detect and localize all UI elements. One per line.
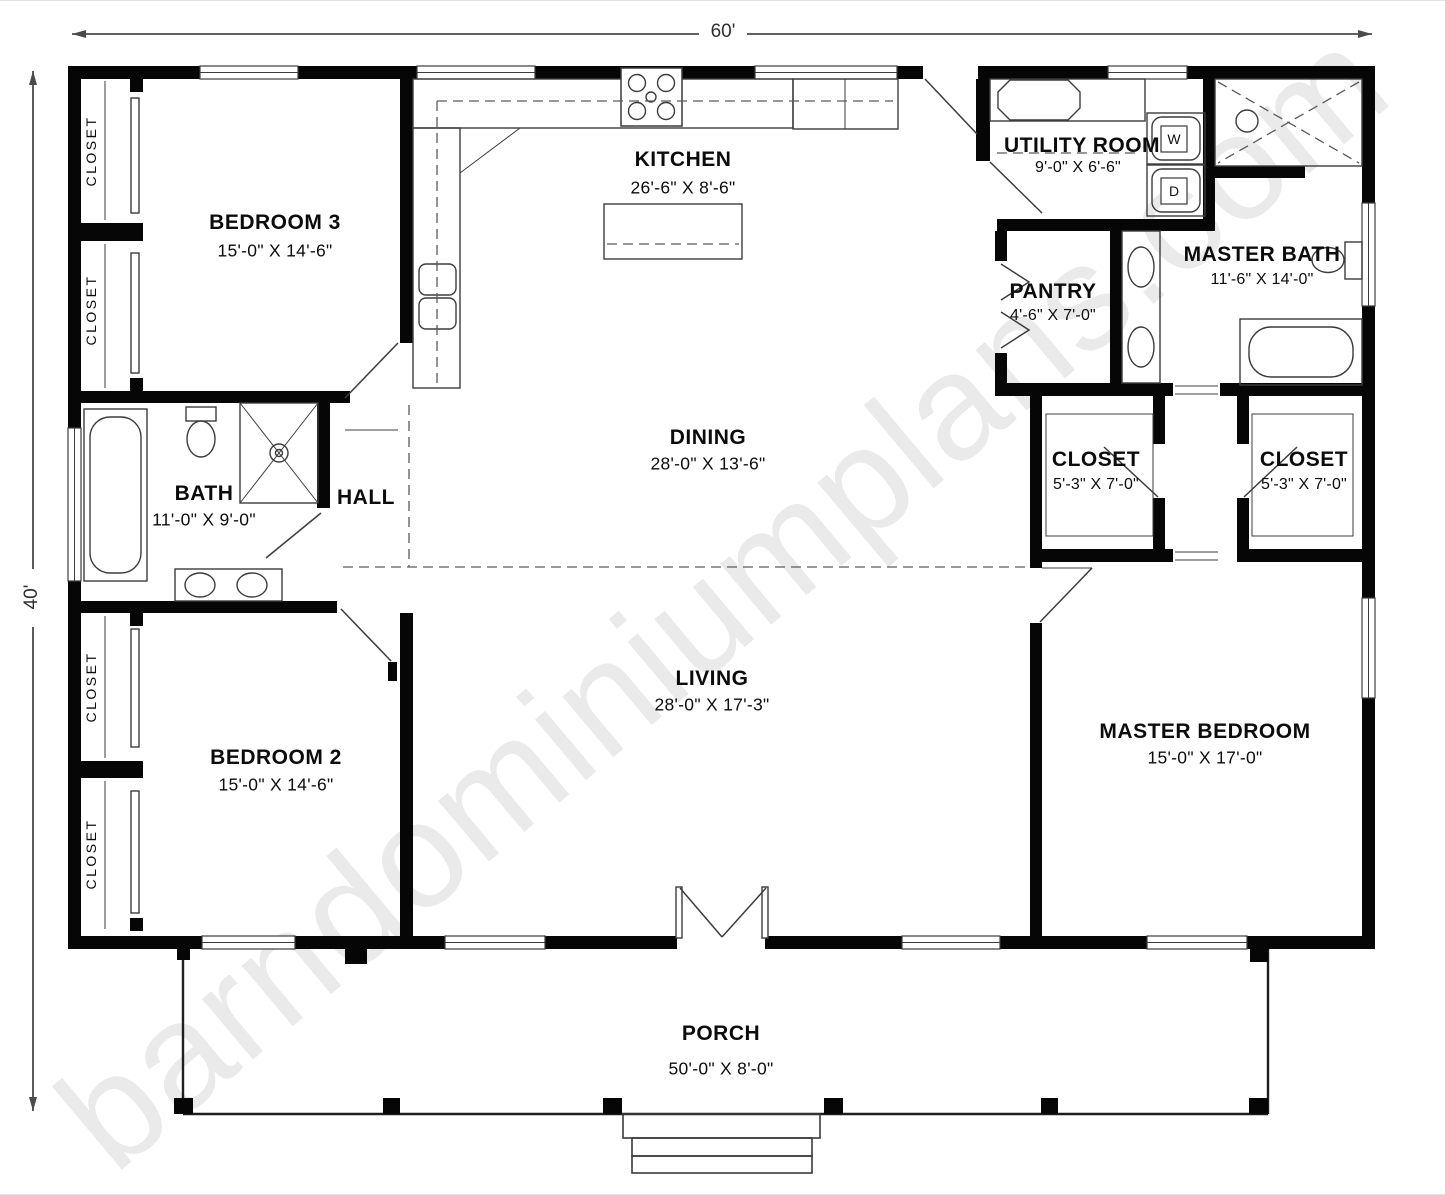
arrowhead-icon	[29, 1097, 37, 1111]
wall-segment	[68, 391, 350, 403]
window	[1362, 203, 1375, 306]
porch-post	[177, 949, 190, 960]
wall-segment	[997, 219, 1215, 231]
washer-label: W	[1167, 131, 1180, 147]
room-label-closet2: CLOSET	[1260, 448, 1348, 472]
bedroom3-door-leaf	[345, 343, 398, 398]
bath-door-leaf	[266, 513, 321, 558]
window	[445, 936, 545, 949]
closet-sliding-door	[131, 791, 139, 913]
walk-in-shower	[1215, 79, 1362, 166]
room-size-master-bedroom: 15'-0" X 17'-0"	[1147, 748, 1262, 769]
porch-step	[632, 1138, 812, 1156]
front-door-leaf	[722, 888, 766, 937]
room-label-kitchen: KITCHEN	[635, 148, 732, 172]
kitchen-island	[604, 204, 742, 259]
window	[68, 428, 81, 581]
dimension-label-width: 60'	[705, 21, 742, 43]
wall-segment	[68, 601, 337, 613]
closet-sliding-door	[131, 629, 139, 747]
window	[902, 936, 1000, 949]
door-jamb	[130, 378, 143, 391]
room-label-utility: UTILITY ROOM	[1004, 134, 1160, 158]
closet-shelf-outline	[1046, 414, 1153, 536]
room-label-living: LIVING	[675, 667, 748, 691]
window	[1147, 936, 1247, 949]
room-label-bedroom3: BEDROOM 3	[209, 211, 341, 235]
room-size-porch: 50'-0" X 8'-0"	[668, 1059, 773, 1080]
door-jamb	[388, 662, 397, 681]
room-size-bath: 11'-0" X 9'-0"	[152, 510, 256, 531]
porch-step	[623, 1114, 820, 1138]
window	[1108, 66, 1187, 79]
door-jamb	[130, 613, 143, 626]
porch-step	[632, 1156, 812, 1173]
rear-door-leaf	[925, 79, 977, 134]
closet-label-vertical: CLOSET	[83, 651, 99, 722]
wall-segment	[1215, 166, 1305, 178]
closet-label-vertical: CLOSET	[83, 274, 99, 345]
kitchen-fixtures	[413, 68, 898, 388]
room-label-dining: DINING	[670, 426, 747, 450]
arrowhead-icon	[72, 30, 86, 38]
wall-segment	[995, 383, 1173, 396]
master-bath-fixtures	[1122, 79, 1362, 385]
room-label-master-bath: MASTER BATH	[1184, 243, 1341, 267]
room-size-pantry: 4'-6" X 7'-0"	[1010, 307, 1096, 325]
refrigerator	[793, 79, 898, 129]
room-label-hall: HALL	[337, 486, 395, 510]
bedroom2-door-leaf	[341, 609, 391, 661]
double-vanity	[1122, 231, 1160, 383]
window	[755, 66, 897, 79]
room-size-bedroom3: 15'-0" X 14'-6"	[217, 241, 332, 262]
wall-segment	[400, 613, 413, 949]
porch-post	[345, 949, 367, 964]
closet-divider-wall	[68, 223, 143, 241]
wall-segment	[400, 66, 413, 343]
wall-segment	[1153, 498, 1165, 549]
front-door-panel	[762, 887, 768, 938]
double-vanity	[175, 569, 282, 601]
bathtub	[84, 409, 147, 581]
room-size-kitchen: 26'-6" X 8'-6"	[630, 178, 735, 199]
wall-segment	[1153, 396, 1165, 444]
wall-segment	[976, 66, 990, 161]
wall-segment	[317, 403, 330, 508]
arrowhead-icon	[1358, 30, 1372, 38]
wall-segment	[1030, 396, 1042, 568]
closet-sliding-door	[131, 253, 139, 373]
wall-segment	[995, 231, 1007, 261]
wall-segment	[995, 353, 1007, 383]
room-size-bedroom2: 15'-0" X 14'-6"	[218, 775, 333, 796]
dimension-label-height: 40'	[21, 579, 43, 616]
window	[202, 936, 295, 949]
front-door-panel	[676, 887, 682, 938]
room-label-bedroom2: BEDROOM 2	[210, 746, 342, 770]
room-size-closet1: 5'-3" X 7'-0"	[1053, 476, 1139, 494]
closet-label-vertical: CLOSET	[83, 818, 99, 889]
porch-post	[1041, 1098, 1058, 1114]
kitchen-counter	[413, 79, 793, 128]
porch-post	[824, 1098, 843, 1114]
wall-right	[1362, 66, 1375, 949]
stove	[621, 68, 682, 126]
closet-sliding-door	[131, 98, 139, 213]
rear-door-opening	[923, 66, 978, 79]
wall-segment	[1030, 623, 1042, 949]
bathtub	[1240, 319, 1362, 385]
closet-label-vertical: CLOSET	[83, 115, 99, 186]
room-size-closet2: 5'-3" X 7'-0"	[1261, 476, 1347, 494]
room-size-master-bath: 11'-6" X 14'-0"	[1211, 271, 1314, 289]
dryer-label: D	[1169, 183, 1179, 199]
door-jamb	[130, 79, 143, 92]
wall-segment	[1237, 549, 1375, 562]
doors	[266, 79, 1297, 938]
laundry-sink	[998, 80, 1080, 120]
porch-post	[603, 1098, 622, 1114]
wall-segment	[1030, 549, 1173, 562]
porch-post	[1250, 949, 1268, 962]
toilet	[186, 407, 216, 457]
front-door-leaf	[680, 888, 722, 937]
shower-drain-icon	[1236, 110, 1258, 132]
porch-post	[1249, 1098, 1268, 1114]
closet-divider-wall	[68, 761, 143, 778]
wall-segment	[1237, 396, 1249, 444]
wall-segment	[1110, 231, 1122, 383]
porch-post	[174, 1098, 193, 1114]
floor-plan: barndominiumplans.com	[0, 0, 1445, 1195]
arrowhead-icon	[29, 71, 37, 85]
shower	[240, 403, 318, 503]
door-jamb	[130, 918, 143, 931]
window	[417, 66, 535, 79]
window	[200, 66, 298, 79]
utility-counter	[990, 79, 1145, 121]
room-label-pantry: PANTRY	[1010, 280, 1097, 304]
room-label-closet1: CLOSET	[1052, 448, 1140, 472]
master-bedroom-door-leaf	[1040, 568, 1092, 622]
room-label-master-bedroom: MASTER BEDROOM	[1099, 720, 1310, 744]
front-door-opening	[677, 936, 765, 949]
room-size-dining: 28'-0" X 13'-6"	[650, 454, 765, 475]
room-label-porch: PORCH	[682, 1022, 760, 1046]
porch-post	[383, 1098, 400, 1114]
room-label-bath: BATH	[175, 482, 234, 506]
window	[1362, 598, 1375, 698]
room-size-utility: 9'-0" X 6'-6"	[1035, 159, 1121, 177]
room-size-living: 28'-0" X 17'-3"	[654, 695, 769, 716]
counter-corner	[460, 128, 520, 173]
closet-strips	[105, 81, 1353, 929]
